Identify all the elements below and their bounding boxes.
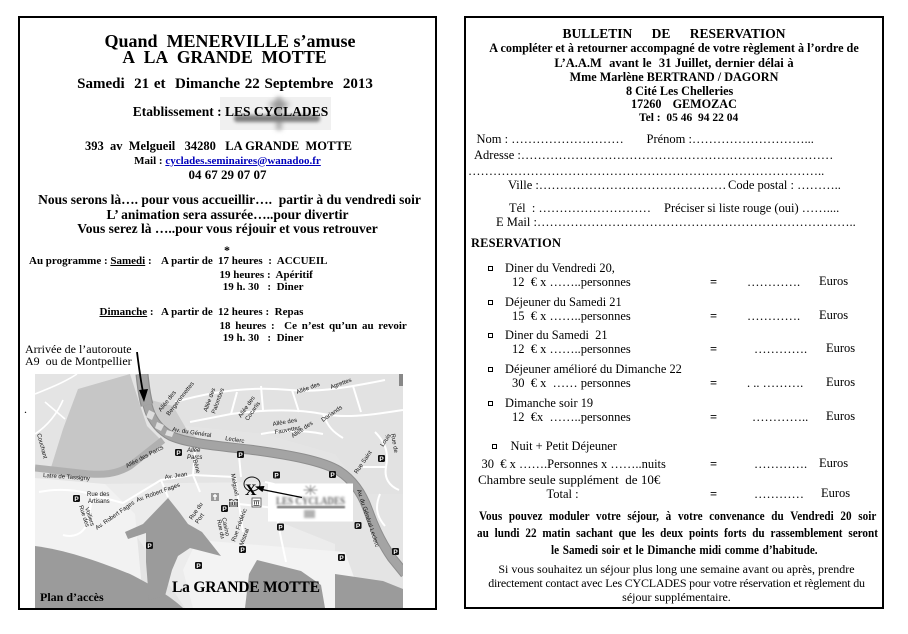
svg-text:P: P (147, 543, 152, 550)
svg-text:P: P (74, 496, 79, 503)
svg-text:P: P (222, 506, 227, 513)
svg-text:La GRANDE MOTTE: La GRANDE MOTTE (172, 579, 320, 596)
svg-text:P: P (176, 450, 181, 457)
svg-text:Rue des: Rue des (87, 492, 109, 498)
svg-text:Artisans: Artisans (88, 499, 110, 505)
svg-text:P: P (196, 563, 201, 570)
svg-text:LES CYCLADES: LES CYCLADES (276, 496, 345, 508)
svg-text:P: P (356, 523, 361, 530)
svg-text:P: P (278, 525, 283, 532)
svg-text:X: X (245, 482, 257, 499)
svg-text:P: P (274, 473, 279, 480)
svg-text:P: P (238, 452, 243, 459)
svg-text:P: P (330, 472, 335, 479)
svg-text:P: P (240, 547, 245, 554)
svg-text:P: P (339, 555, 344, 562)
svg-text:Plan d’accès: Plan d’accès (40, 590, 104, 604)
svg-text:P: P (379, 456, 384, 463)
svg-text:P: P (393, 549, 398, 556)
svg-text:Allée: Allée (186, 448, 201, 454)
